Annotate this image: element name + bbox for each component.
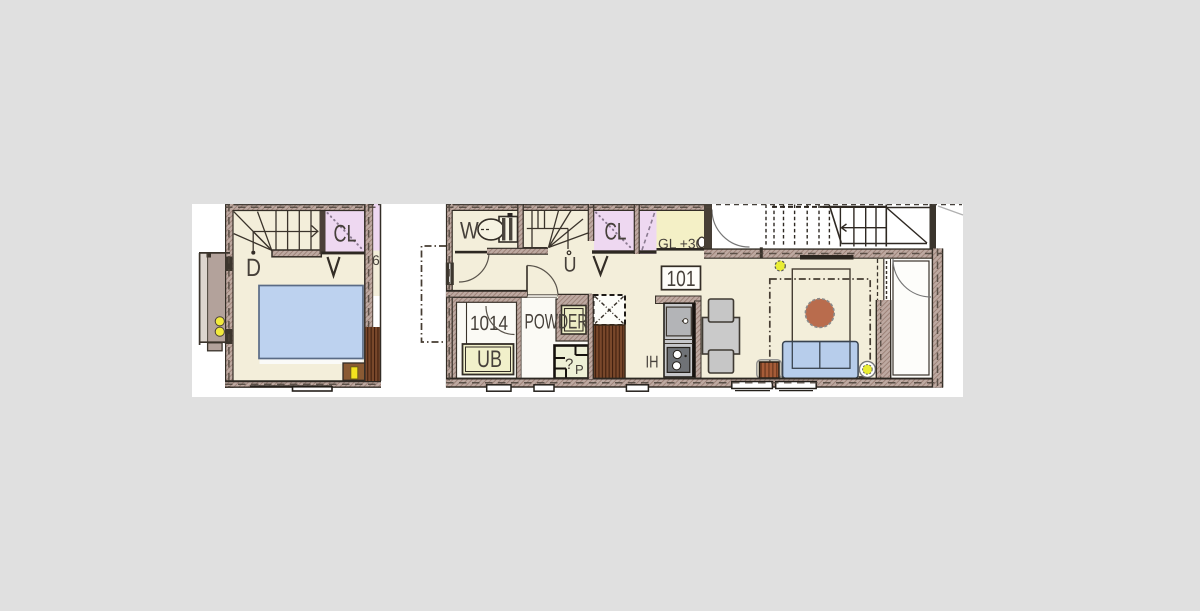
svg-text:101: 101: [667, 266, 696, 291]
svg-text:POWDER: POWDER: [525, 311, 588, 334]
svg-text:U: U: [564, 254, 577, 277]
svg-text:6: 6: [372, 252, 380, 268]
svg-text:?: ?: [565, 356, 573, 373]
svg-text:IH: IH: [646, 353, 659, 372]
svg-text:D: D: [246, 254, 261, 282]
svg-text:UB: UB: [477, 346, 502, 373]
svg-text:P: P: [575, 362, 584, 377]
svg-text:CL: CL: [334, 221, 357, 248]
svg-text:CL: CL: [605, 219, 627, 246]
